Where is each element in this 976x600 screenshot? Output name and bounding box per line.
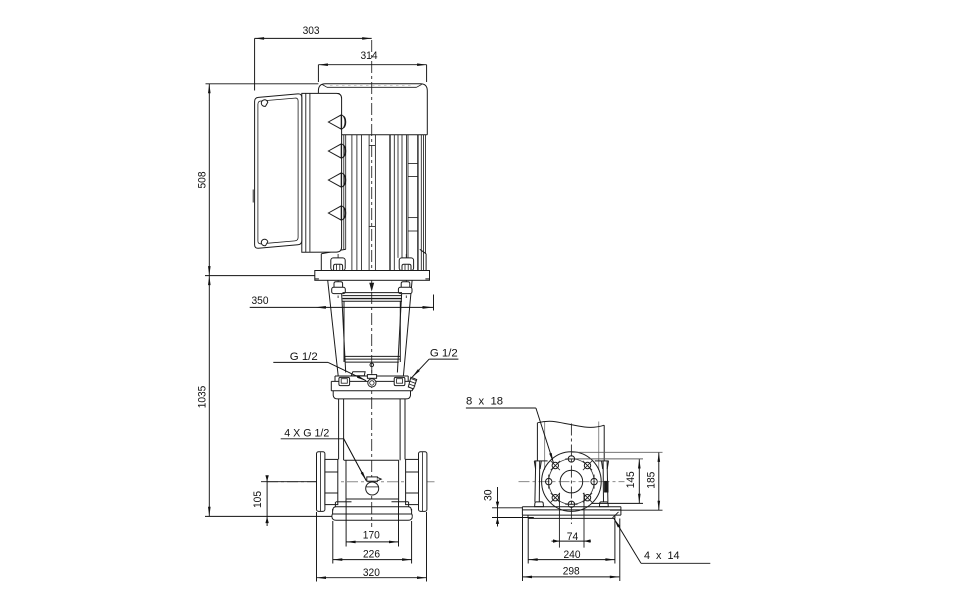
svg-text:8 x 18: 8 x 18 [466, 395, 503, 407]
svg-text:320: 320 [363, 567, 380, 579]
svg-text:1035: 1035 [197, 386, 209, 409]
svg-text:508: 508 [197, 172, 209, 189]
svg-text:4 X G 1/2: 4 X G 1/2 [284, 427, 329, 439]
svg-text:303: 303 [303, 25, 320, 37]
svg-text:314: 314 [361, 50, 378, 62]
svg-text:30: 30 [483, 489, 495, 501]
svg-text:G 1/2: G 1/2 [430, 348, 458, 360]
svg-text:105: 105 [252, 491, 264, 508]
svg-text:74: 74 [567, 531, 579, 543]
svg-text:298: 298 [563, 566, 580, 578]
svg-text:240: 240 [564, 549, 581, 561]
svg-text:G 1/2: G 1/2 [290, 351, 318, 363]
svg-text:350: 350 [252, 295, 269, 307]
svg-text:4 x 14: 4 x 14 [644, 550, 680, 562]
svg-text:170: 170 [363, 529, 380, 541]
svg-text:185: 185 [646, 472, 658, 489]
svg-text:226: 226 [363, 549, 380, 561]
svg-text:145: 145 [625, 471, 637, 488]
